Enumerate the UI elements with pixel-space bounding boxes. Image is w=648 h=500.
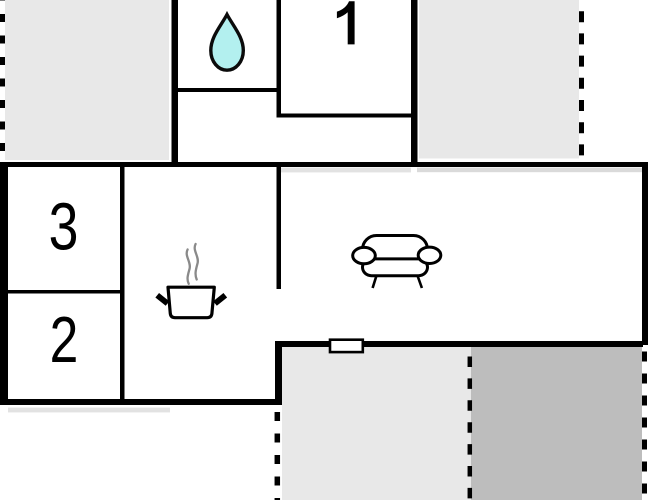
svg-text:3: 3 <box>49 189 79 264</box>
svg-text:2: 2 <box>50 305 79 377</box>
